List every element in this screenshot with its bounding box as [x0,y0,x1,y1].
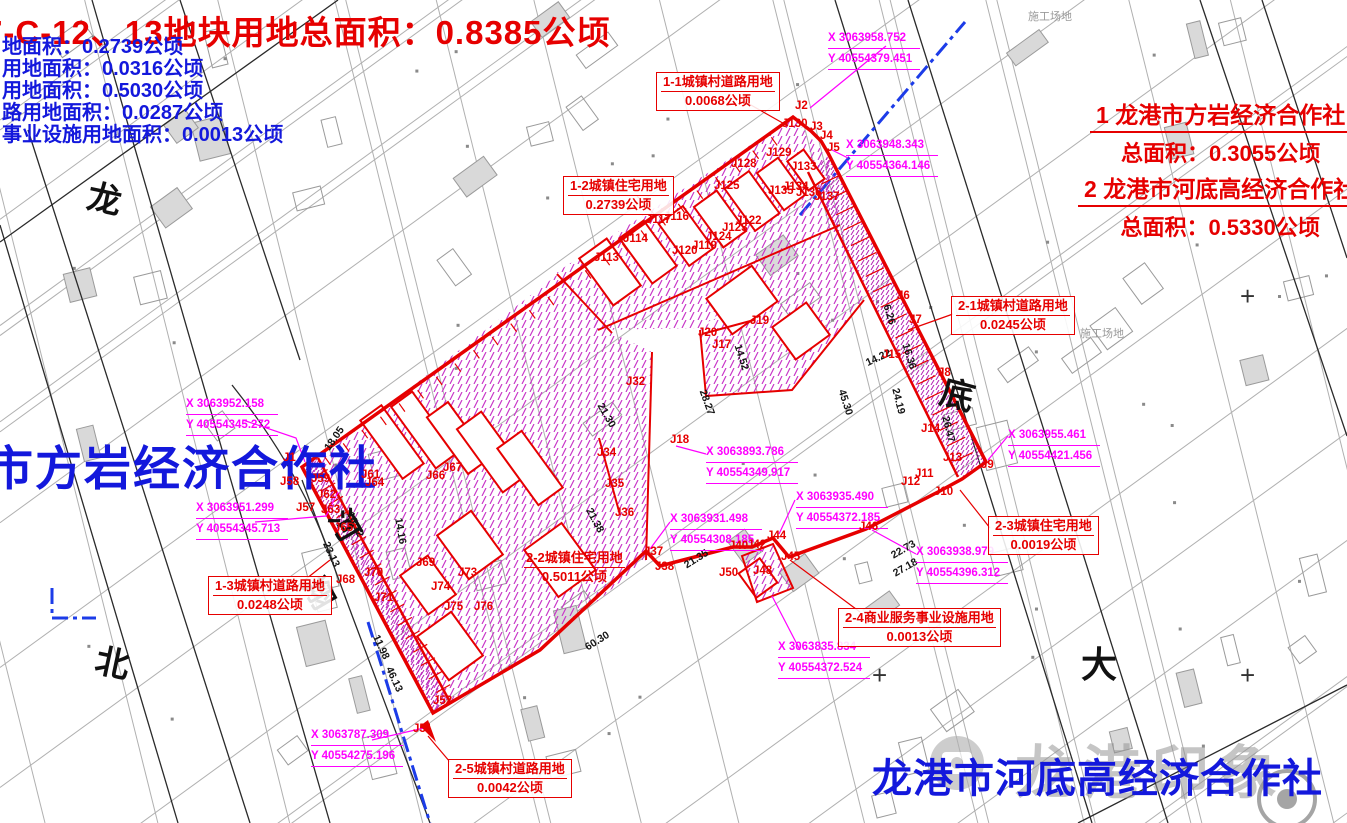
corner-logo-icon [1259,771,1315,823]
j51-arrowhead [420,720,436,742]
watermark-logo-icon [930,736,984,790]
background-parcels [0,0,1347,823]
cadastral-map-page: 7-C-12、13地块用地总面积：0.8385公顷 地面积：0.2739公顷 用… [0,0,1347,823]
map-canvas [0,0,1347,823]
